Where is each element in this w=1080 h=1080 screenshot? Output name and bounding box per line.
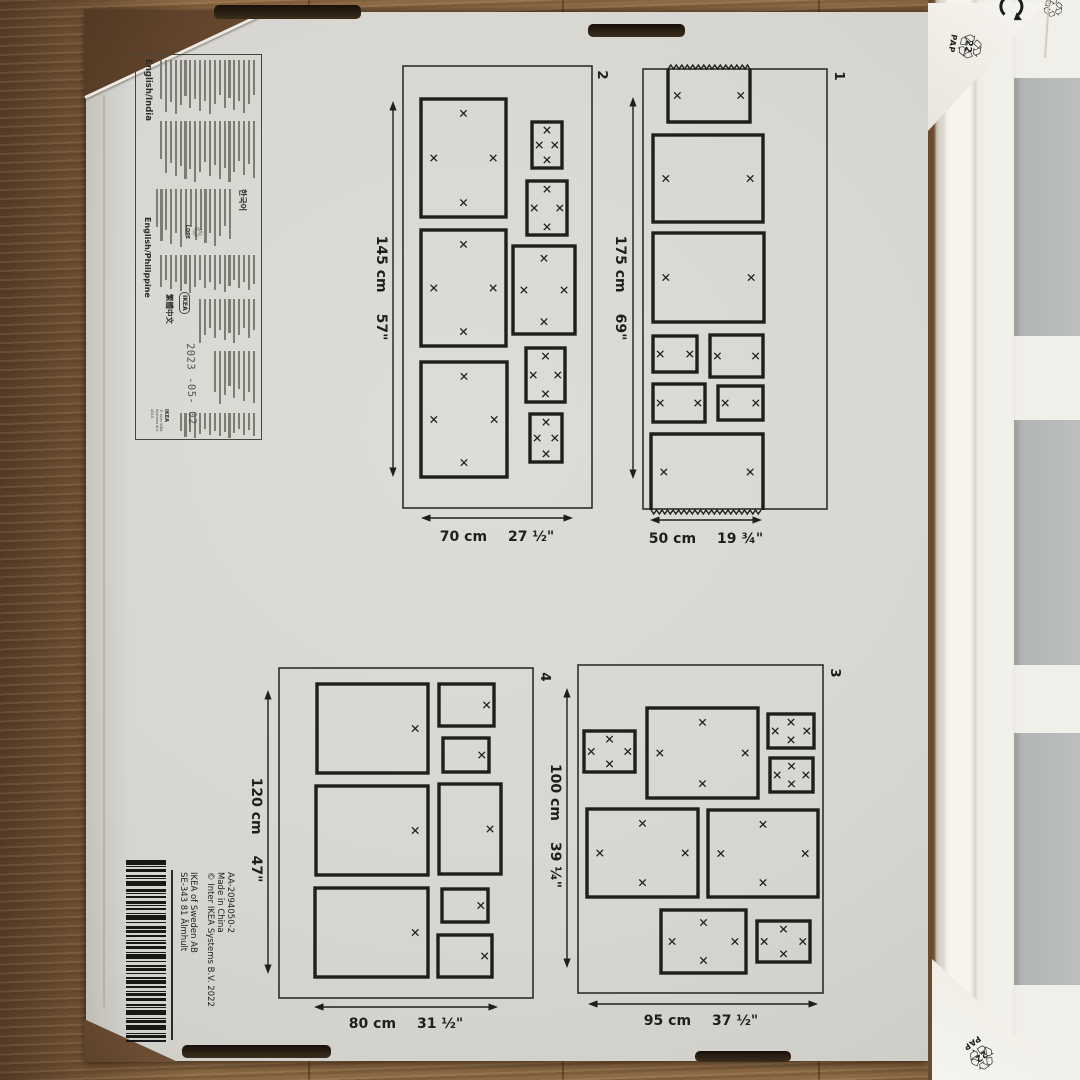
diagram-number: 2 [594,70,610,79]
height-dimension-label: 100 cm 39 ¼" [547,764,563,888]
product-info-label: 한국어 ♲ LDPE IKEA 繁體中文 2023 -05- 02 IKEA ©… [135,54,262,440]
hanging-diagram-4: 4120 cm 47"80 cm 31 ½" [248,668,553,1032]
ldpe-text: LDPE [184,220,190,244]
frame-outline [439,784,501,874]
diagram-number: 1 [831,71,847,80]
barcode-text-lines: AA-2094050-2 Made in China © Inter IKEA … [178,872,235,1007]
barcode-bars [126,860,166,1048]
frame-outline [651,434,763,510]
hanging-diagram-2: 2145 cm 57"70 cm 27 ½" [373,66,610,545]
microtext-column [211,351,255,405]
address-text: SE-343 81 Älmhult [178,872,188,1007]
microtext-column [157,121,255,183]
width-dimension-label: 50 cm 19 ¾" [649,531,763,547]
frame-outline [668,69,750,122]
label-language-english-philippine: English/Philippine [143,217,152,298]
partial-recycling-symbols: ♲ [996,0,1062,23]
frame-outline [708,810,818,897]
frame-outline [316,786,428,875]
width-dimension-label: 70 cm 27 ½" [440,529,554,545]
ikea-logo: IKEA [179,292,190,314]
copyright-text: © Inter IKEA Systems B.V. 2015 [150,409,163,439]
mobius-recycle-icon: ♲ [1033,0,1069,21]
recycle-triangle-icon: ♲ [190,220,203,244]
frame-outline [315,888,428,977]
circular-recycle-icon [993,0,1030,25]
ldpe-recycling-icon: ♲ LDPE [184,220,203,244]
label-copyright-block: IKEA © Inter IKEA Systems B.V. 2015 [150,409,169,439]
mat-opening [1014,733,1080,985]
label-language-chinese: 繁體中文 [164,294,175,324]
barcode-label-content: AA-2094050-2 Made in China © Inter IKEA … [123,858,237,1050]
mat-opening [1014,78,1080,336]
diagram-number: 3 [827,668,843,677]
date-stamp: 2023 -05- 02 [184,343,198,425]
microtext-column [196,299,255,345]
label-language-korean: 한국어 [237,189,248,211]
product-info-label-content: 한국어 ♲ LDPE IKEA 繁體中文 2023 -05- 02 IKEA ©… [135,54,262,440]
frame-outline [661,910,746,973]
width-dimension-label: 80 cm 31 ½" [349,1016,463,1032]
frame-outline [532,122,562,168]
divider-line [172,870,174,1040]
article-number: AA-2094050-2 [225,872,235,1007]
barcode-label: AA-2094050-2 Made in China © Inter IKEA … [123,858,237,1050]
frame-outline [653,233,764,322]
ikea-logo-small: IKEA [163,409,169,439]
white-picture-frame [928,0,1080,1080]
frame-outline [587,809,698,897]
height-dimension-label: 175 cm 69" [612,236,628,341]
photo-scene: 1175 cm 69"50 cm 19 ¾"2145 cm 57"70 cm 2… [0,0,1080,1080]
pap-recycling-mark: ♲ 22 PAP [933,21,989,69]
mat-opening [1014,420,1080,665]
label-language-english-india: English/India [143,59,153,121]
frame-outline [653,135,763,222]
height-dimension-label: 145 cm 57" [373,236,389,341]
frame-outline [513,246,575,334]
microtext-column [157,60,255,116]
hanging-diagram-3: 3100 cm 39 ¼"95 cm 37 ½" [547,665,843,1029]
width-dimension-label: 95 cm 37 ½" [644,1013,758,1029]
microtext-column [157,255,255,293]
pap-recycling-mark: ♲ 22 PAP [946,1018,1007,1080]
height-dimension-label: 120 cm 47" [248,778,264,883]
frame-outline [317,684,428,773]
diagram-number: 4 [537,672,553,681]
company-text: IKEA of Sweden AB [188,872,198,1007]
origin-text: Made in China [215,872,225,1007]
hanging-diagram-1: 1175 cm 69"50 cm 19 ¾" [612,65,847,547]
copyright-text: © Inter IKEA Systems B.V. 2022 [205,872,215,1007]
